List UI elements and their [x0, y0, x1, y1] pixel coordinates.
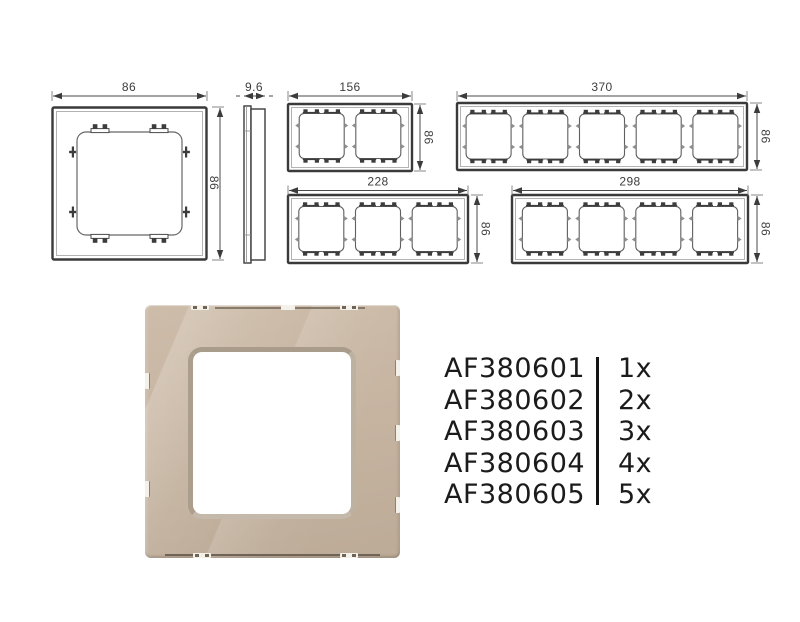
product-qty: 2x	[618, 385, 684, 417]
dim-3gang-width: 228	[367, 175, 388, 189]
drawing-1gang-front: 86 86	[52, 80, 224, 260]
clip-tick	[193, 306, 197, 309]
product-photo	[145, 305, 400, 558]
drawing-5gang-front: 370 86	[457, 80, 773, 170]
dim-5gang-width: 370	[591, 80, 612, 94]
dim-5gang-height: 86	[759, 129, 773, 143]
dim-1gang-width: 86	[122, 80, 136, 94]
catalog-page: 86 86 9.6 156	[0, 0, 800, 622]
product-code-row: AF380602 2x	[444, 385, 684, 417]
drawing-2gang-front: 156 86	[288, 80, 436, 171]
product-code: AF380602	[444, 385, 618, 417]
product-qty: 3x	[618, 416, 684, 448]
clip-tick	[195, 554, 199, 557]
drawing-3gang-front: 228 86	[288, 175, 493, 264]
clip-notch	[145, 481, 150, 497]
clip-tick	[203, 306, 207, 309]
dim-1gang-height: 86	[207, 176, 221, 190]
dim-2gang-height: 86	[422, 130, 436, 144]
dim-4gang-height: 86	[759, 222, 773, 236]
product-code-list: AF380601 1x AF380602 2x AF380603 3x AF38…	[444, 353, 684, 511]
dim-3gang-height: 86	[479, 222, 493, 236]
drawing-4gang-front: 298 86	[512, 175, 773, 264]
product-code-row: AF380604 4x	[444, 448, 684, 480]
product-code: AF380605	[444, 479, 618, 511]
dim-4gang-width: 298	[619, 175, 640, 189]
product-qty: 4x	[618, 448, 684, 480]
technical-drawings: 86 86 9.6 156	[0, 0, 800, 290]
product-code-row: AF380605 5x	[444, 479, 684, 511]
clip-tick	[342, 306, 346, 309]
divider-line	[596, 357, 599, 505]
product-code-row: AF380601 1x	[444, 353, 684, 385]
product-code: AF380601	[444, 353, 618, 385]
clip-notch	[395, 497, 400, 513]
clip-notch	[281, 305, 295, 310]
clip-tick	[352, 306, 356, 309]
clip-tick	[205, 554, 209, 557]
product-code: AF380604	[444, 448, 618, 480]
clip-notch	[395, 425, 400, 441]
clip-notch	[395, 360, 400, 376]
clip-tick	[342, 554, 346, 557]
product-code-row: AF380603 3x	[444, 416, 684, 448]
clip-notch	[145, 373, 150, 389]
dim-2gang-width: 156	[339, 80, 360, 94]
dim-depth: 9.6	[245, 80, 263, 94]
clip-tick	[352, 554, 356, 557]
drawing-side-profile: 9.6	[236, 80, 273, 263]
photo-opening	[188, 347, 356, 519]
product-qty: 1x	[618, 353, 684, 385]
product-qty: 5x	[618, 479, 684, 511]
product-code: AF380603	[444, 416, 618, 448]
